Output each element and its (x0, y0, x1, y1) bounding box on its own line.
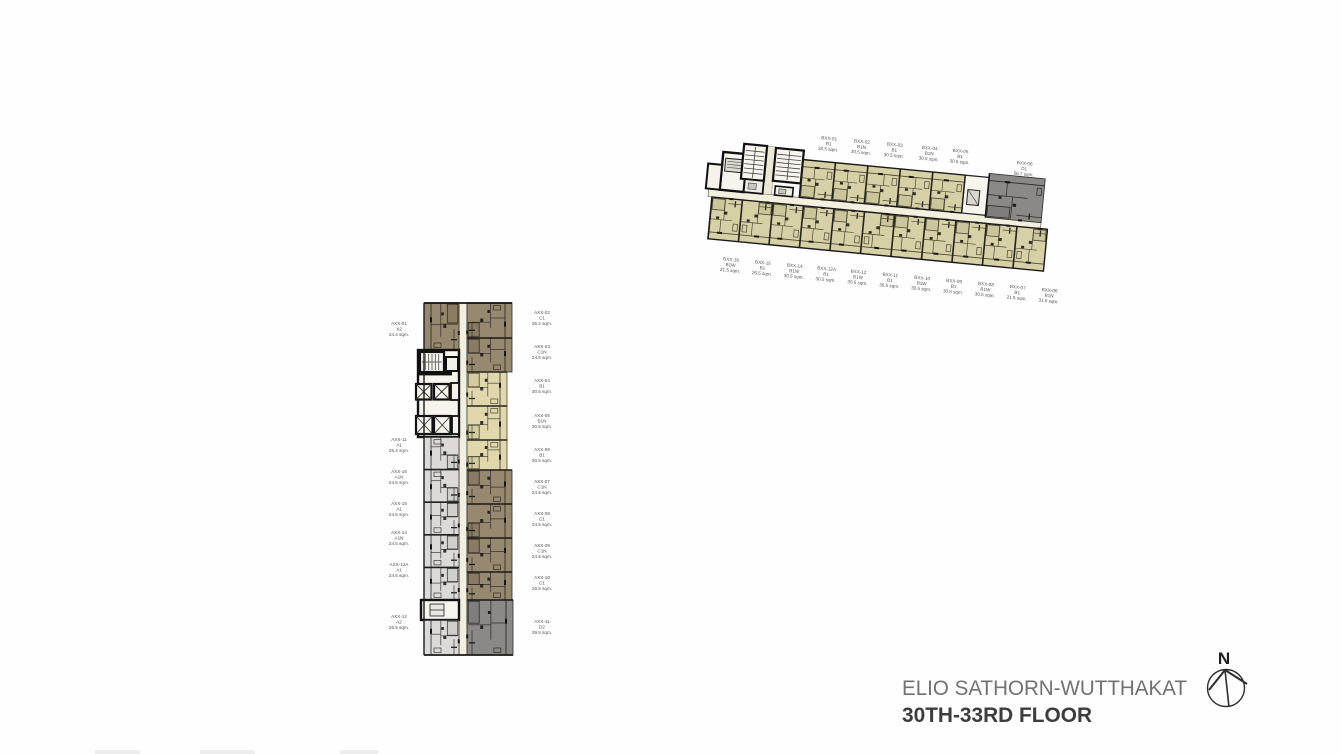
svg-text:ELIO SATHORN-WUTTHAKAT: ELIO SATHORN-WUTTHAKAT (902, 677, 1187, 700)
svg-text:N: N (1218, 649, 1230, 668)
svg-text:30TH-33RD FLOOR: 30TH-33RD FLOOR (902, 704, 1092, 727)
